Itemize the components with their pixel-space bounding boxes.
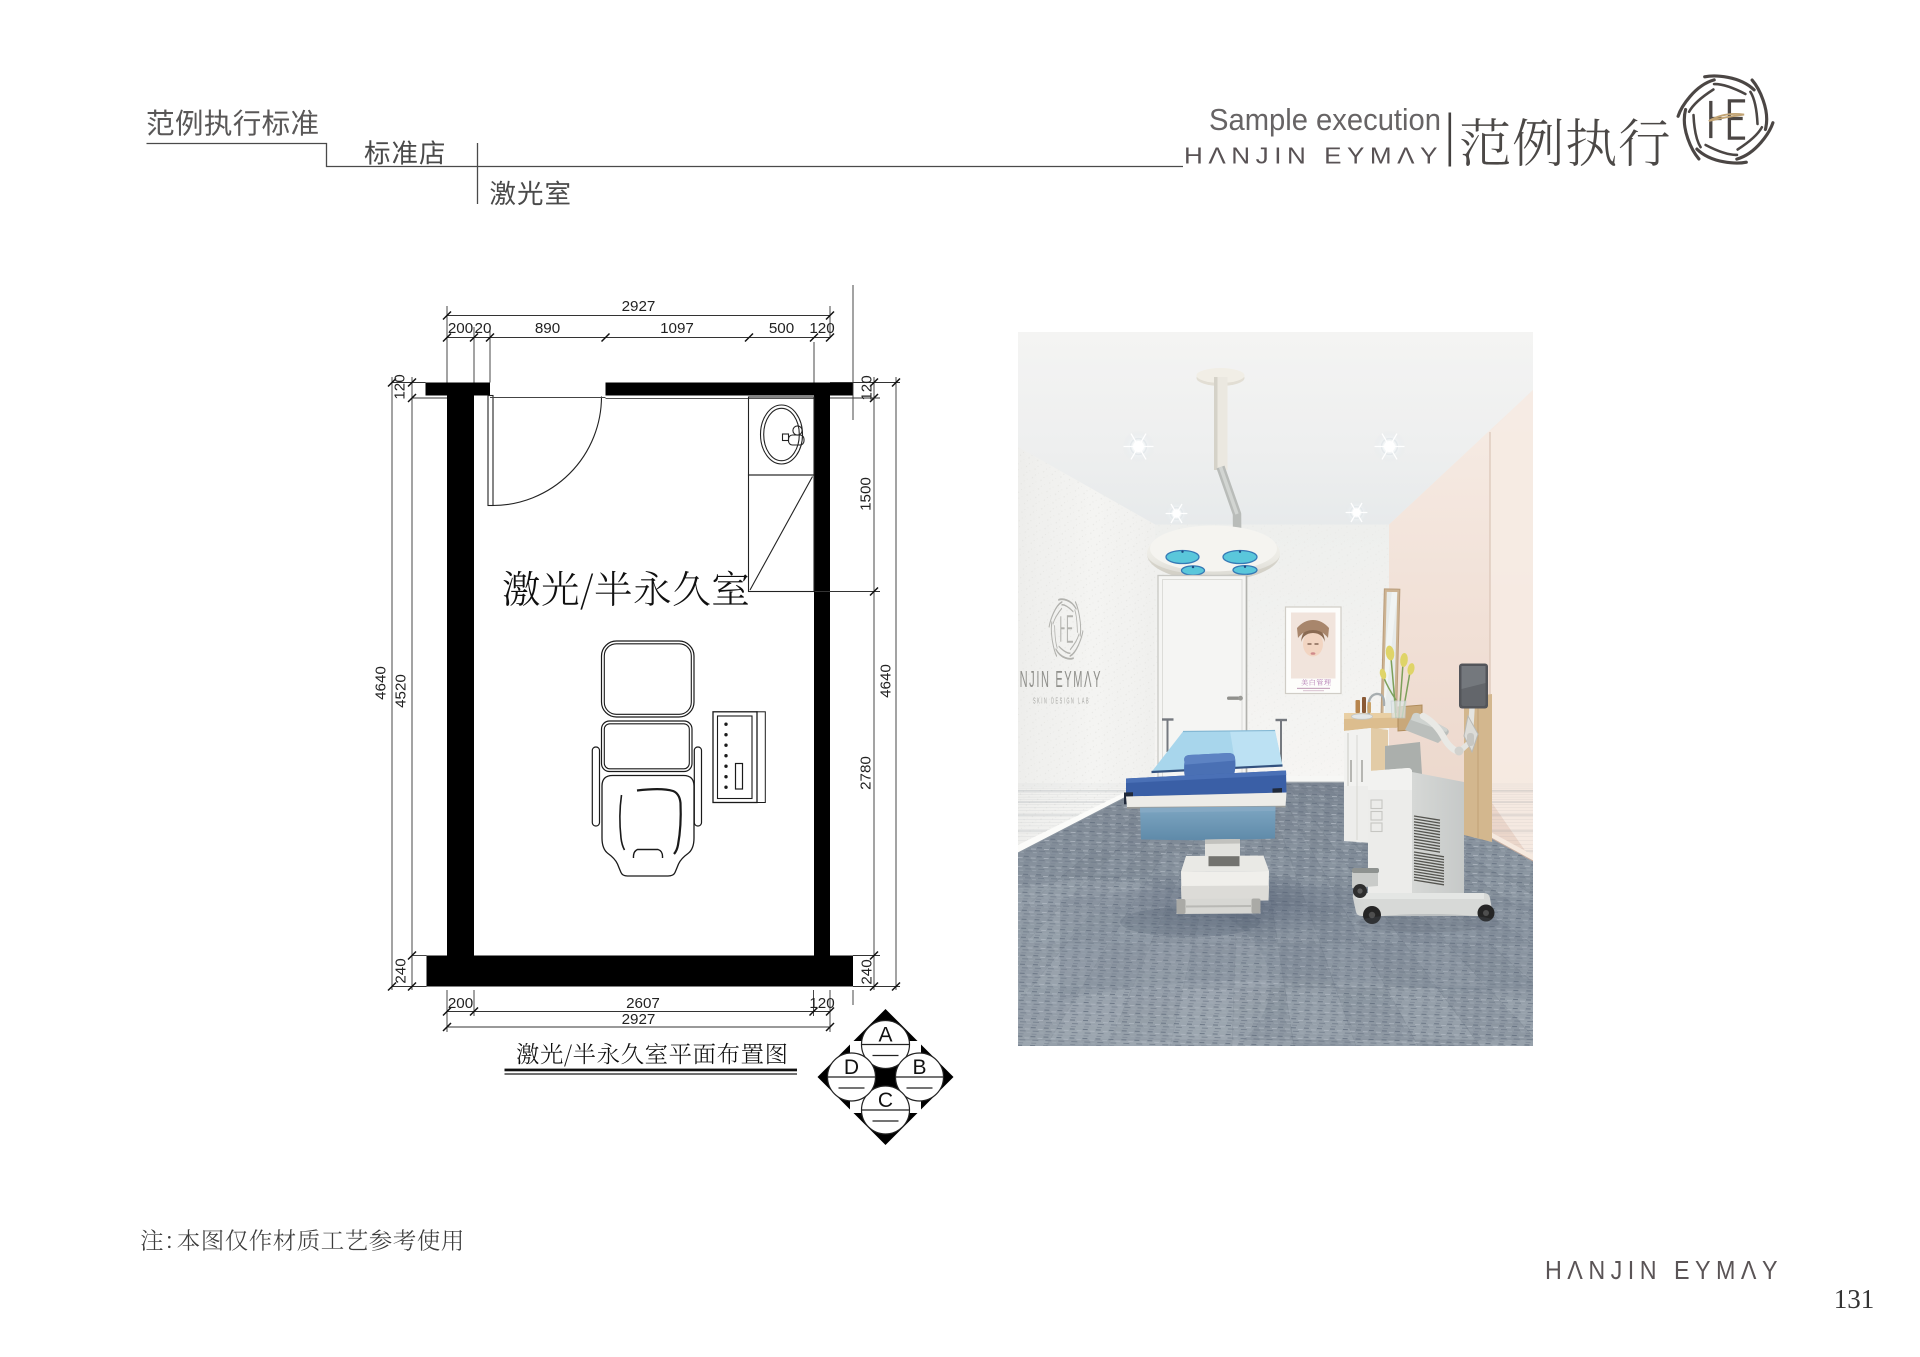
svg-text:2780: 2780 xyxy=(858,756,875,790)
svg-text:120: 120 xyxy=(809,320,834,337)
svg-text:2927: 2927 xyxy=(622,1011,656,1028)
svg-text:HΛNJIN EYMΛY: HΛNJIN EYMΛY xyxy=(1545,1257,1783,1285)
svg-text:200: 200 xyxy=(448,320,473,337)
svg-text:D: D xyxy=(844,1056,859,1079)
svg-text:1500: 1500 xyxy=(858,477,875,511)
svg-text:200: 200 xyxy=(448,995,473,1012)
svg-text:120: 120 xyxy=(809,995,834,1012)
svg-text:890: 890 xyxy=(535,320,560,337)
svg-text:1097: 1097 xyxy=(660,320,694,337)
svg-text:A: A xyxy=(878,1024,892,1047)
svg-text:131: 131 xyxy=(1834,1284,1875,1314)
svg-text:4520: 4520 xyxy=(393,674,410,708)
svg-text:20: 20 xyxy=(475,320,492,337)
svg-text:2607: 2607 xyxy=(626,995,660,1012)
svg-text:Sample execution: Sample execution xyxy=(1209,102,1441,137)
svg-text:HΛNJIN EYMΛY: HΛNJIN EYMΛY xyxy=(1001,667,1102,692)
svg-text:120: 120 xyxy=(392,374,409,399)
svg-text:2927: 2927 xyxy=(622,298,656,315)
svg-text:240: 240 xyxy=(393,958,410,983)
svg-text:SKIN DESIGN LAB: SKIN DESIGN LAB xyxy=(1033,697,1090,706)
svg-text:HΛNJIN EYMΛY: HΛNJIN EYMΛY xyxy=(1184,143,1443,169)
svg-text:4640: 4640 xyxy=(878,664,895,698)
svg-text:C: C xyxy=(878,1089,893,1112)
svg-text:240: 240 xyxy=(859,959,876,984)
svg-text:120: 120 xyxy=(859,375,876,400)
svg-text:B: B xyxy=(912,1056,926,1079)
svg-text:500: 500 xyxy=(769,320,794,337)
svg-text:4640: 4640 xyxy=(373,666,390,700)
